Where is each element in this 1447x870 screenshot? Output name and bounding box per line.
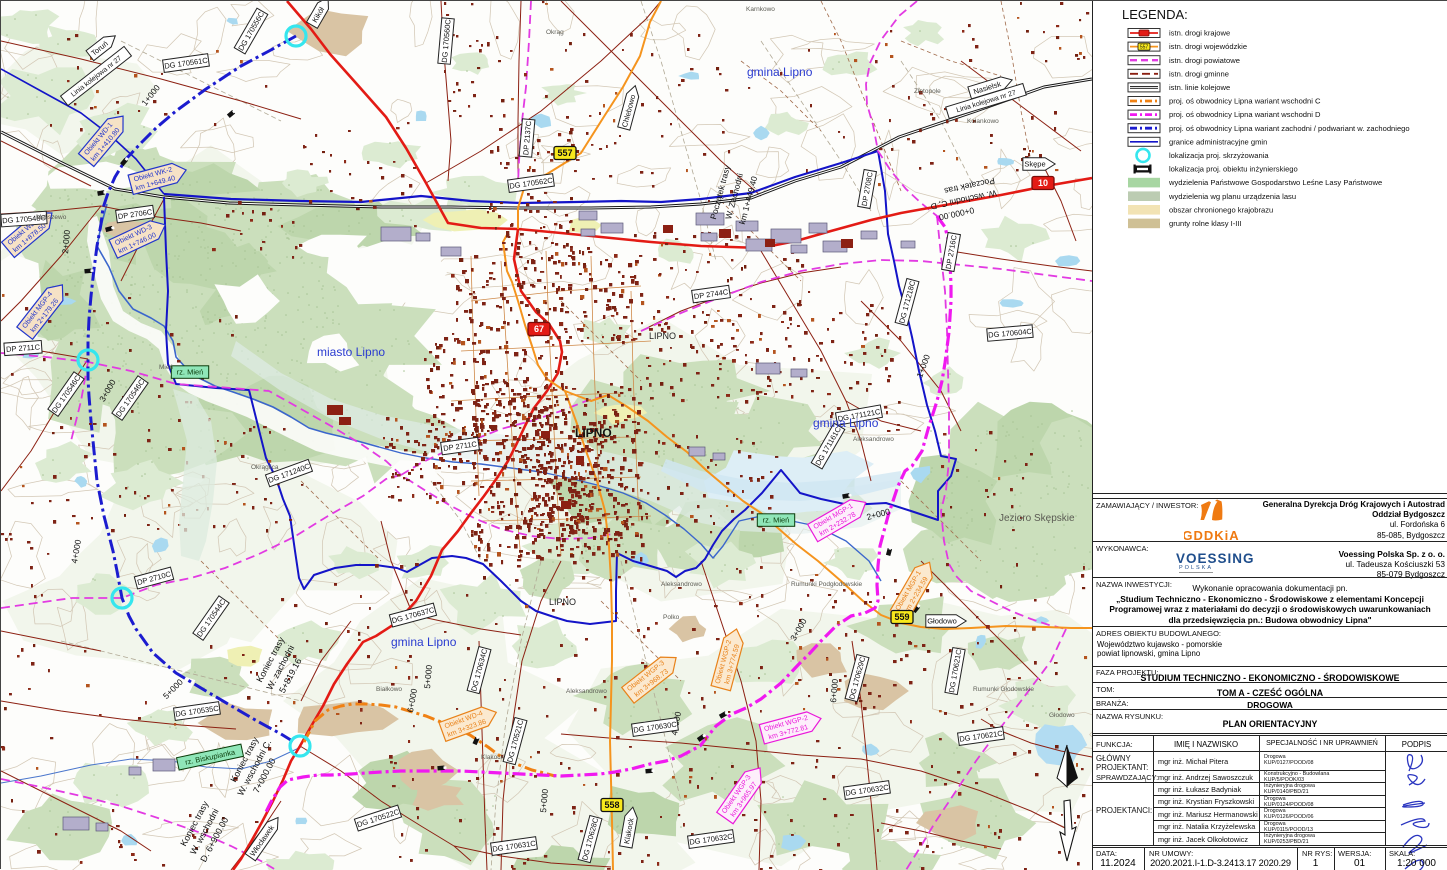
svg-text:rz. Mień: rz. Mień (177, 368, 204, 377)
svg-text:Klakock: Klakock (481, 754, 505, 761)
svg-text:559: 559 (894, 612, 909, 622)
svg-text:Kolankowo: Kolankowo (967, 118, 999, 125)
svg-text:Rumunki Podgłodowskie: Rumunki Podgłodowskie (791, 581, 863, 588)
svg-text:558: 558 (604, 800, 619, 810)
svg-text:miasto Lipno: miasto Lipno (317, 345, 385, 359)
svg-text:Białkowo: Białkowo (376, 686, 402, 693)
svg-text:Aleksandrowo: Aleksandrowo (566, 688, 607, 695)
svg-text:Okrąg: Okrąg (546, 29, 564, 36)
svg-text:Aleksandrowo: Aleksandrowo (661, 581, 702, 588)
svg-text:gmina Lipno: gmina Lipno (391, 635, 457, 649)
svg-text:Skępe: Skępe (1024, 160, 1045, 169)
svg-text:Maliszewo: Maliszewo (36, 214, 67, 221)
svg-text:Polko: Polko (663, 614, 680, 621)
svg-text:557: 557 (557, 148, 572, 158)
svg-text:Rumunki Głodowskie: Rumunki Głodowskie (973, 686, 1034, 693)
svg-text:Jezioro Skępskie: Jezioro Skępskie (999, 513, 1075, 524)
svg-text:Karnkowo: Karnkowo (746, 6, 775, 13)
svg-text:Głodowo: Głodowo (927, 617, 957, 626)
svg-text:Aleksandrowo: Aleksandrowo (853, 436, 894, 443)
svg-text:5+000: 5+000 (538, 788, 550, 813)
svg-text:10: 10 (1038, 178, 1048, 188)
svg-text:67: 67 (534, 324, 544, 334)
svg-text:Mień: Mień (159, 364, 173, 371)
svg-text:2+000: 2+000 (60, 229, 72, 254)
svg-text:Okrąglica: Okrąglica (251, 464, 279, 471)
svg-text:LIPNO: LIPNO (649, 331, 676, 341)
svg-text:Głodowo: Głodowo (1049, 712, 1075, 719)
svg-text:Złotopole: Złotopole (914, 88, 941, 95)
svg-text:LIPNO: LIPNO (549, 597, 576, 607)
svg-text:6+000: 6+000 (828, 678, 840, 703)
svg-text:LIPNO: LIPNO (575, 426, 612, 440)
svg-text:gmina Lipno: gmina Lipno (813, 416, 879, 430)
svg-text:rz. Mień: rz. Mień (763, 516, 790, 525)
svg-text:gmina Lipno: gmina Lipno (747, 65, 813, 79)
svg-text:5+000: 5+000 (422, 664, 434, 689)
